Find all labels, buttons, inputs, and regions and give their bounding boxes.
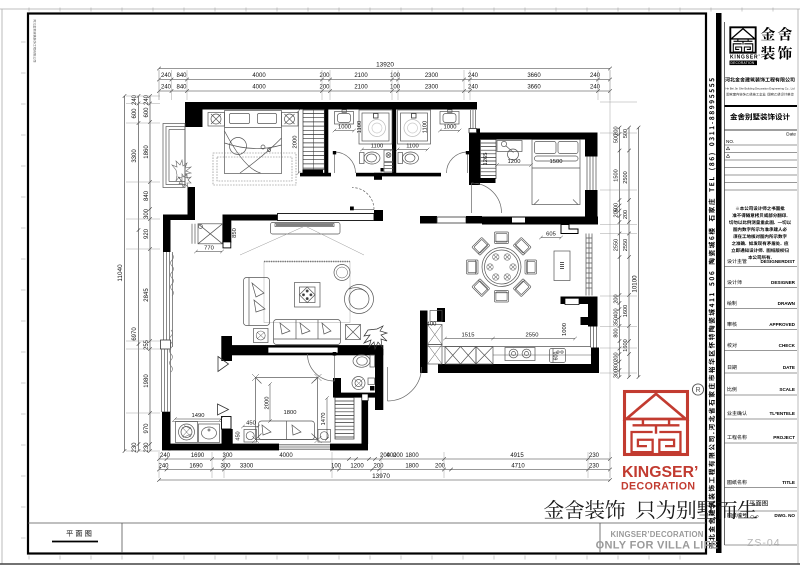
svg-text:1100: 1100	[422, 121, 428, 133]
svg-text:1200: 1200	[350, 463, 364, 469]
svg-text:500: 500	[623, 129, 629, 138]
svg-text:DECORATION: DECORATION	[731, 61, 755, 65]
svg-text:840: 840	[176, 73, 187, 79]
svg-text:500: 500	[613, 134, 619, 143]
svg-text:400: 400	[427, 322, 437, 328]
svg-text:2000: 2000	[293, 136, 299, 149]
svg-text:1500: 1500	[613, 169, 619, 181]
svg-text:230: 230	[589, 453, 600, 459]
svg-text:200: 200	[613, 352, 619, 361]
svg-text:NO.: NO.	[726, 139, 734, 144]
svg-text:PROJECT: PROJECT	[773, 435, 795, 440]
svg-text:CHECK: CHECK	[779, 343, 796, 348]
svg-text:DATE: DATE	[783, 365, 795, 370]
svg-text:2100: 2100	[354, 85, 368, 91]
svg-text:2300: 2300	[425, 73, 439, 79]
svg-text:240: 240	[590, 73, 601, 79]
svg-text:600: 600	[132, 108, 138, 119]
svg-text:2500: 2500	[623, 171, 629, 183]
svg-text:240: 240	[158, 463, 169, 469]
svg-text:1860: 1860	[144, 145, 150, 159]
svg-text:450: 450	[246, 421, 256, 427]
svg-text:2300: 2300	[425, 85, 439, 91]
svg-text:200: 200	[393, 453, 404, 459]
svg-text:400: 400	[613, 308, 619, 317]
svg-text:1600: 1600	[623, 339, 629, 351]
svg-text:800: 800	[613, 328, 619, 337]
svg-text:1000: 1000	[338, 125, 351, 131]
svg-text:200: 200	[613, 208, 619, 217]
svg-text:1100: 1100	[357, 121, 363, 133]
svg-text:11040: 11040	[117, 264, 124, 282]
svg-text:KINGSER’DECORATION: KINGSER’DECORATION	[610, 530, 703, 539]
svg-text:3660: 3660	[527, 73, 541, 79]
svg-text:1100: 1100	[371, 144, 383, 150]
svg-text:100: 100	[331, 463, 342, 469]
svg-text:200: 200	[373, 463, 384, 469]
svg-text:TL*ENTELE: TL*ENTELE	[769, 411, 795, 416]
svg-text:KINGSER’: KINGSER’	[730, 55, 761, 61]
svg-text:240: 240	[161, 73, 172, 79]
svg-text:200: 200	[613, 294, 619, 303]
svg-text:600: 600	[144, 107, 150, 118]
svg-text:3300: 3300	[240, 463, 254, 469]
svg-text:KINGSER’: KINGSER’	[622, 464, 698, 481]
svg-text:1100: 1100	[406, 144, 418, 150]
svg-text:1800: 1800	[284, 410, 297, 416]
svg-text:10100: 10100	[632, 275, 639, 293]
svg-text:4000: 4000	[252, 73, 266, 79]
svg-text:1800: 1800	[405, 463, 419, 469]
svg-text:100: 100	[390, 73, 401, 79]
svg-text:4000: 4000	[252, 85, 266, 91]
svg-text:850: 850	[232, 228, 238, 238]
svg-text:1800: 1800	[405, 453, 419, 459]
svg-text:SCALE: SCALE	[779, 387, 795, 392]
svg-text:1200: 1200	[508, 159, 521, 165]
svg-text:He Bei Jin She Building Decora: He Bei Jin She Building Decoration Engin…	[726, 87, 795, 91]
svg-text:1000: 1000	[444, 125, 457, 131]
svg-text:100: 100	[390, 85, 401, 91]
svg-text:6970: 6970	[132, 327, 138, 341]
svg-text:605: 605	[546, 232, 556, 238]
svg-text:200: 200	[319, 85, 330, 91]
svg-text:3660: 3660	[527, 85, 541, 91]
svg-text:13920: 13920	[376, 62, 394, 69]
svg-text:DRAWN: DRAWN	[778, 301, 796, 306]
svg-text:300: 300	[220, 463, 231, 469]
svg-text:DWG. NO: DWG. NO	[774, 513, 795, 518]
svg-text:APPROVED: APPROVED	[769, 322, 795, 327]
svg-text:770: 770	[204, 246, 214, 252]
svg-text:450: 450	[236, 431, 242, 440]
svg-text:1515: 1515	[462, 333, 475, 339]
svg-text:1600: 1600	[623, 305, 629, 317]
svg-text:2550: 2550	[623, 239, 629, 251]
svg-text:R: R	[695, 387, 700, 394]
svg-text:240: 240	[160, 453, 171, 459]
svg-text:ZS-04: ZS-04	[747, 537, 781, 549]
svg-text:3300: 3300	[132, 149, 138, 163]
svg-text:1500: 1500	[550, 159, 563, 165]
svg-text:2550: 2550	[526, 333, 539, 339]
svg-text:240: 240	[161, 85, 172, 91]
svg-text:230: 230	[589, 463, 600, 469]
svg-text:1470: 1470	[321, 413, 327, 426]
svg-text:840: 840	[176, 85, 187, 91]
svg-text:4000: 4000	[279, 453, 293, 459]
svg-text:DESIGNER: DESIGNER	[771, 280, 796, 285]
svg-text:1265: 1265	[483, 153, 489, 166]
svg-text:Date: Date	[786, 132, 796, 137]
svg-text:TITLE: TITLE	[782, 480, 795, 485]
svg-text:240: 240	[590, 85, 601, 91]
svg-text:200: 200	[319, 73, 330, 79]
svg-text:200: 200	[623, 210, 629, 219]
svg-text:1980: 1980	[144, 374, 150, 388]
svg-text:1000: 1000	[562, 323, 568, 336]
svg-text:970: 970	[144, 423, 150, 434]
svg-text:4915: 4915	[510, 453, 524, 459]
svg-text:300: 300	[144, 208, 150, 219]
svg-text:800: 800	[613, 361, 619, 370]
svg-text:2100: 2100	[354, 73, 368, 79]
svg-text:600: 600	[554, 352, 560, 361]
svg-text:2000: 2000	[264, 397, 270, 410]
svg-text:1490: 1490	[192, 413, 205, 419]
svg-text:DESIGNERDIST: DESIGNERDIST	[761, 259, 796, 264]
svg-text:ONLY FOR VILLA LIFE: ONLY FOR VILLA LIFE	[596, 540, 719, 552]
svg-text:840: 840	[144, 190, 150, 201]
svg-text:2550: 2550	[613, 239, 619, 251]
svg-text:240: 240	[468, 73, 479, 79]
svg-text:1690: 1690	[189, 463, 203, 469]
svg-text:4710: 4710	[511, 463, 525, 469]
svg-text:DECORATION: DECORATION	[621, 481, 695, 493]
svg-text:1690: 1690	[191, 453, 205, 459]
svg-text:300: 300	[613, 369, 619, 378]
svg-text:240: 240	[468, 85, 479, 91]
svg-text:350: 350	[613, 317, 619, 326]
svg-text:920: 920	[144, 228, 150, 239]
svg-text:2845: 2845	[144, 288, 150, 302]
